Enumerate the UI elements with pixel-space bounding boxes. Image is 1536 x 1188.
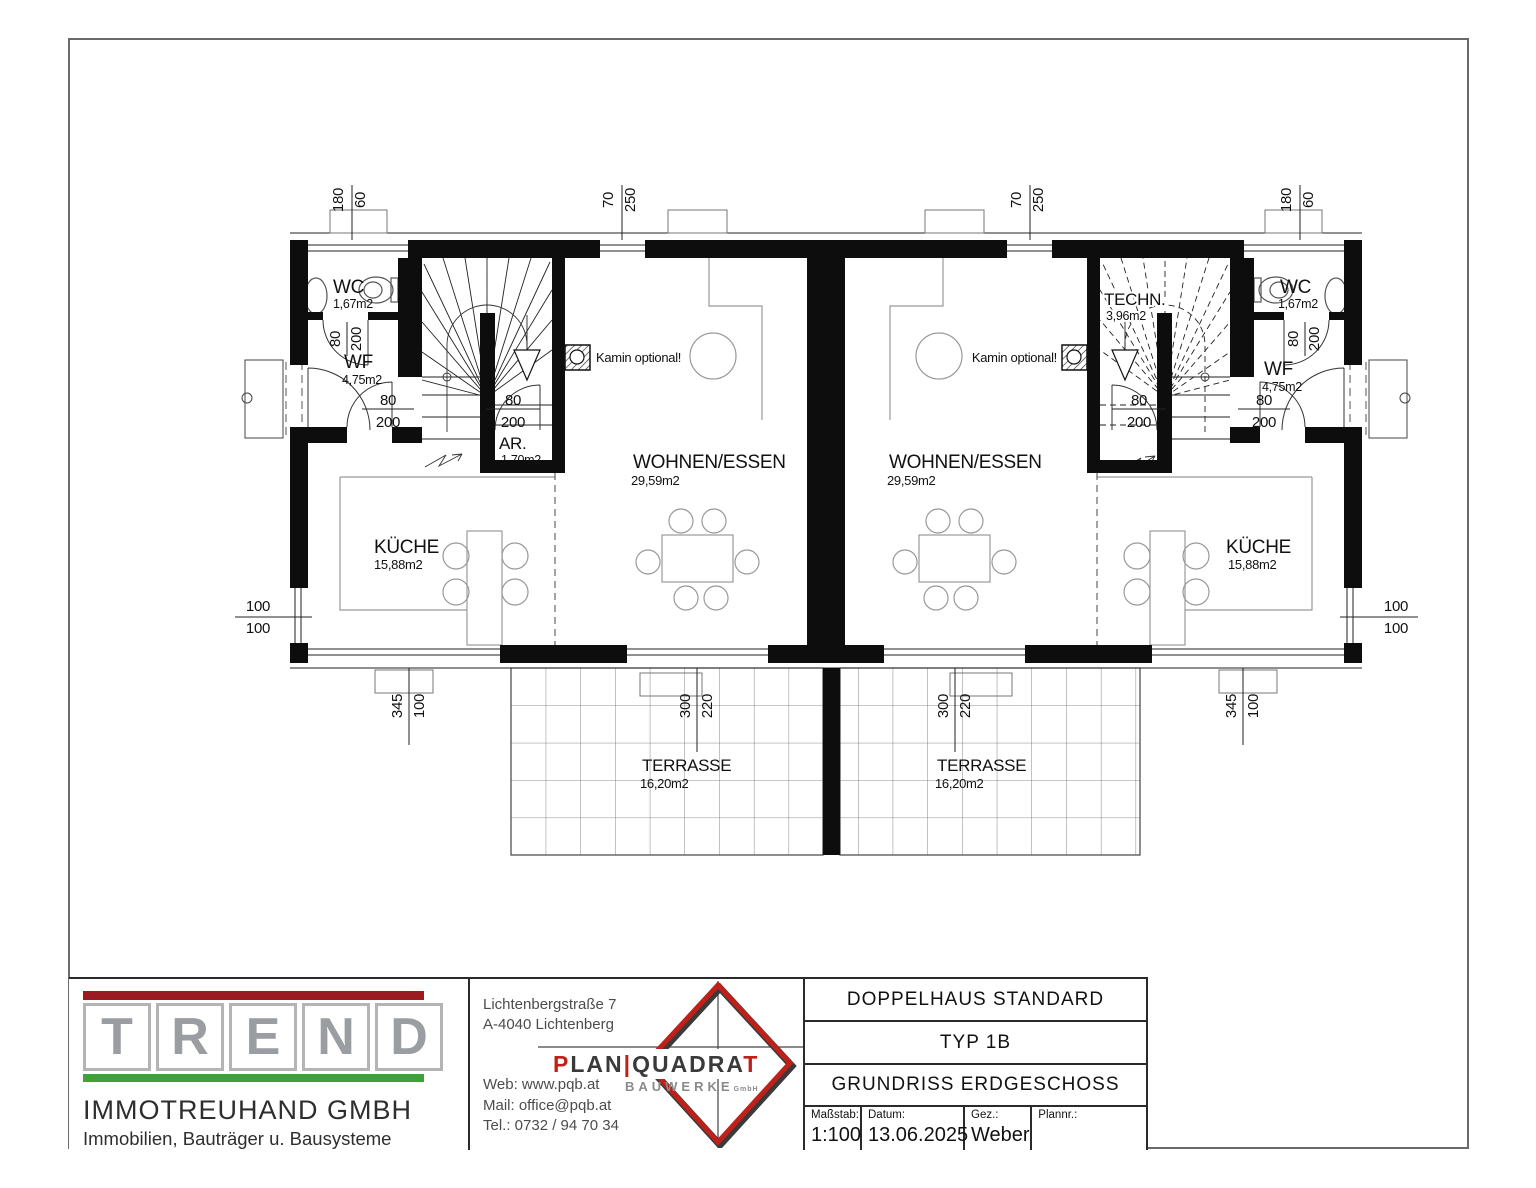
dim-text: 200 xyxy=(376,414,400,431)
bauwerke-gmbh: GmbH xyxy=(734,1086,759,1093)
trend-red-bar xyxy=(83,991,424,1000)
dim-text: 200 xyxy=(1306,327,1323,351)
contact-mail: Mail: office@pqb.at xyxy=(483,1096,619,1116)
dim-text: 300 xyxy=(935,694,952,718)
trend-company-name: IMMOTREUHAND GMBH xyxy=(83,1095,468,1126)
room-label-ar: AR. xyxy=(499,434,526,453)
address-line2: A-4040 Lichtenberg xyxy=(483,1015,616,1035)
project-type: TYP 1B xyxy=(805,1022,1146,1065)
architect-address: Lichtenbergstraße 7 A-4040 Lichtenberg xyxy=(483,995,616,1036)
logo-plan: LAN xyxy=(570,1051,623,1077)
dim-text: 100 xyxy=(1384,620,1408,637)
trend-letter-row: T R E N D xyxy=(83,1003,468,1071)
dim-text: 220 xyxy=(699,694,716,718)
logo-bauwerke: BAUWERKEGmbH xyxy=(625,1079,759,1094)
field-value: 1:100 xyxy=(811,1124,860,1147)
floorplan-page: { "plan": { "rooms": { "wc": {"name": "W… xyxy=(0,0,1536,1188)
dim-text: 80 xyxy=(380,392,396,409)
dim-text: 80 xyxy=(1131,392,1147,409)
dim-text: 200 xyxy=(501,414,525,431)
dim-text: 345 xyxy=(389,694,406,718)
dim-text: 180 xyxy=(330,188,347,212)
dim-text: 80 xyxy=(327,331,344,347)
project-fields: Maßstab: 1:100 Datum: 13.06.2025 Gez.: W… xyxy=(805,1107,1146,1150)
project-drawing-name: GRUNDRISS ERDGESCHOSS xyxy=(805,1065,1146,1107)
project-info-section: DOPPELHAUS STANDARD TYP 1B GRUNDRISS ERD… xyxy=(805,979,1148,1150)
field-label: Maßstab: xyxy=(811,1109,860,1121)
room-area-ar: 1,70m2 xyxy=(501,453,541,467)
room-area-wf-left: 4,75m2 xyxy=(342,373,382,387)
room-label-wc-right: WC xyxy=(1280,277,1311,298)
chimney-left xyxy=(565,345,590,370)
annotation-kamin-left: Kamin optional! xyxy=(596,350,681,365)
dim-text: 250 xyxy=(622,188,639,212)
room-label-kueche-left: KÜCHE xyxy=(374,537,439,558)
contact-web: Web: www.pqb.at xyxy=(483,1075,619,1095)
field-massstab: Maßstab: 1:100 xyxy=(805,1107,862,1150)
dim-text: 100 xyxy=(246,620,270,637)
dim-text: 80 xyxy=(505,392,521,409)
room-area-terrasse-right: 16,20m2 xyxy=(935,776,984,791)
logo-plan-p: P xyxy=(553,1051,570,1077)
room-label-kueche-right: KÜCHE xyxy=(1226,537,1291,558)
room-label-wohnen-left: WOHNEN/ESSEN xyxy=(633,452,786,473)
planquadrat-logo-text: PLAN|QUADRAT xyxy=(550,1051,762,1078)
room-area-kueche-right: 15,88m2 xyxy=(1228,557,1277,572)
field-datum: Datum: 13.06.2025 xyxy=(862,1107,965,1150)
project-title: DOPPELHAUS STANDARD xyxy=(805,979,1146,1022)
field-gezeichnet: Gez.: Weber xyxy=(965,1107,1032,1150)
dim-text: 70 xyxy=(1008,192,1025,208)
trend-letter: T xyxy=(83,1003,151,1071)
room-area-terrasse-left: 16,20m2 xyxy=(640,776,689,791)
logo-quadrat: QUADRA xyxy=(632,1051,743,1077)
trend-logo-section: T R E N D IMMOTREUHAND GMBH Immobilien, … xyxy=(69,979,470,1150)
field-label: Datum: xyxy=(868,1109,963,1121)
title-block: T R E N D IMMOTREUHAND GMBH Immobilien, … xyxy=(69,977,1148,1150)
trend-letter: D xyxy=(375,1003,443,1071)
field-value: 13.06.2025 xyxy=(868,1124,963,1147)
room-area-wc-right: 1,67m2 xyxy=(1278,297,1318,311)
room-area-techn: 3,96m2 xyxy=(1106,309,1146,323)
dim-text: 80 xyxy=(1285,331,1302,347)
address-line1: Lichtenbergstraße 7 xyxy=(483,995,616,1015)
dim-text: 220 xyxy=(957,694,974,718)
trend-letter: N xyxy=(302,1003,370,1071)
room-area-kueche-left: 15,88m2 xyxy=(374,557,423,572)
contact-tel: Tel.: 0732 / 94 70 34 xyxy=(483,1116,619,1136)
dim-text: 60 xyxy=(352,192,369,208)
trend-tagline: Immobilien, Bauträger u. Bausysteme xyxy=(83,1128,468,1150)
bauwerke-text: BAUWERKE xyxy=(625,1079,734,1094)
dim-text: 70 xyxy=(600,192,617,208)
annotation-kamin-right: Kamin optional! xyxy=(972,350,1057,365)
room-area-wohnen-right: 29,59m2 xyxy=(887,473,936,488)
room-area-wf-right: 4,75m2 xyxy=(1262,380,1302,394)
room-area-wc-left: 1,67m2 xyxy=(333,297,373,311)
logo-sep: | xyxy=(624,1051,632,1077)
field-label: Gez.: xyxy=(971,1109,1030,1121)
chimney-right xyxy=(1062,345,1087,370)
room-label-terrasse-left: TERRASSE xyxy=(642,756,731,775)
dim-text: 250 xyxy=(1030,188,1047,212)
room-area-wohnen-left: 29,59m2 xyxy=(631,473,680,488)
dim-text: 345 xyxy=(1223,694,1240,718)
room-label-techn: TECHN. xyxy=(1104,290,1165,309)
dim-text: 60 xyxy=(1300,192,1317,208)
dim-text: 100 xyxy=(246,598,270,615)
architect-contact: Web: www.pqb.at Mail: office@pqb.at Tel.… xyxy=(483,1075,619,1136)
trend-letter: E xyxy=(229,1003,297,1071)
field-label: Plannr.: xyxy=(1038,1109,1146,1121)
dim-text: 200 xyxy=(348,327,365,351)
dim-text: 200 xyxy=(1127,414,1151,431)
dim-text: 180 xyxy=(1278,188,1295,212)
dim-text: 100 xyxy=(1384,598,1408,615)
room-label-wohnen-right: WOHNEN/ESSEN xyxy=(889,452,1042,473)
room-label-terrasse-right: TERRASSE xyxy=(937,756,1026,775)
trend-green-bar xyxy=(83,1074,424,1082)
room-label-wf-right: WF xyxy=(1264,359,1293,380)
dim-text: 100 xyxy=(411,694,428,718)
trend-letter: R xyxy=(156,1003,224,1071)
field-plannr: Plannr.: xyxy=(1032,1107,1146,1150)
dim-text: 100 xyxy=(1245,694,1262,718)
dim-text: 300 xyxy=(677,694,694,718)
room-label-wc-left: WC xyxy=(333,277,364,298)
architect-section: Lichtenbergstraße 7 A-4040 Lichtenberg P… xyxy=(470,979,805,1150)
walls xyxy=(290,240,1362,855)
room-label-wf-left: WF xyxy=(344,352,373,373)
dim-text: 80 xyxy=(1256,392,1272,409)
dim-text: 200 xyxy=(1252,414,1276,431)
logo-t: T xyxy=(743,1051,759,1077)
field-value: Weber xyxy=(971,1124,1030,1147)
